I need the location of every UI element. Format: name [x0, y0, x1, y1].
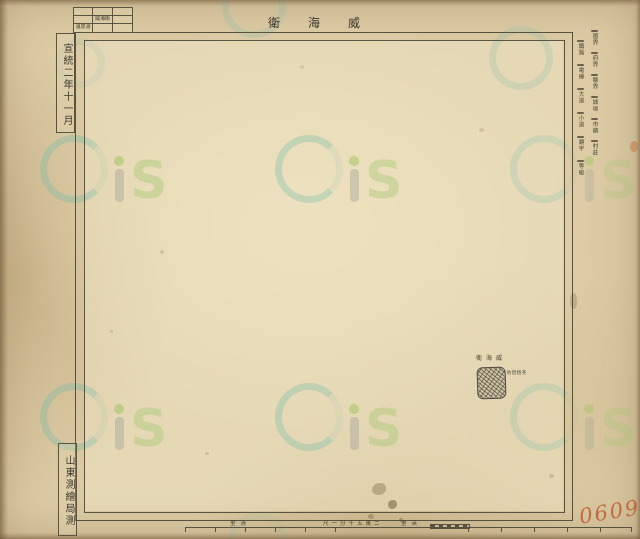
scale-tick [275, 528, 276, 532]
legend-item: 市鎮 [591, 118, 598, 134]
scale-tick [468, 528, 469, 532]
legend-symbol-icon [591, 96, 598, 98]
sheet-title: 衛海威 [268, 14, 388, 31]
legend-item: 縣界 [591, 74, 598, 90]
index-cell [93, 8, 112, 16]
watermark-i-icon [584, 404, 594, 451]
legend-label: 電線 [578, 67, 584, 80]
scale-tick [215, 528, 216, 532]
legend-label: 村莊 [592, 143, 598, 156]
watermark-s-letter: S [600, 407, 637, 451]
legend-label: 市鎮 [592, 121, 598, 134]
legend-label: 鐵路 [578, 43, 584, 56]
legend-item: 小道 [577, 112, 584, 128]
paper-edge-shadow [636, 0, 640, 539]
legend-inner-column: 鐵路 電線 大道 小道 廟宇 等級 [577, 40, 584, 176]
legend-item: 廟宇 [577, 136, 584, 152]
watermark-s-letter: S [600, 159, 637, 203]
legend-symbol-icon [591, 30, 598, 32]
scale-subdivision-comb [430, 524, 470, 529]
scale-tick [600, 528, 601, 532]
index-cell [113, 16, 132, 24]
scale-tick [335, 528, 336, 532]
scale-left-unit-label: 里清 [230, 519, 251, 527]
map-frame-inner [84, 40, 565, 513]
legend-symbol-icon [577, 160, 584, 162]
scale-bar: 里清 尺一分千五萬二 里英 [185, 518, 633, 534]
paper-edge-shadow [0, 0, 640, 6]
scanned-map-sheet: S S S S S S [0, 0, 640, 539]
legend-symbol-icon [577, 88, 584, 90]
legend-item: 等級 [577, 160, 584, 176]
legend-label: 小道 [578, 115, 584, 128]
legend-label: 等級 [578, 163, 584, 176]
legend-symbol-icon [591, 140, 598, 142]
legend-symbol-icon [591, 52, 598, 54]
legend-label: 大道 [578, 91, 584, 104]
legend-label: 國界 [592, 33, 598, 46]
index-cell-adjacent-sheet: 温泉湯 [74, 24, 93, 32]
adjoining-sheet-index-table: 威海衛 温泉湯 [73, 7, 133, 33]
legend-item: 大道 [577, 88, 584, 104]
scale-bar-line [185, 527, 632, 528]
legend-label: 府界 [592, 55, 598, 68]
scale-ratio-label: 尺一分千五萬二 [323, 519, 383, 527]
legend-symbol-icon [591, 74, 598, 76]
legend-item: 電線 [577, 64, 584, 80]
legend-outer-column: 國界 府界 縣界 城垣 市鎮 村莊 [591, 30, 598, 156]
scale-tick [534, 528, 535, 532]
legend-item: 村莊 [591, 140, 598, 156]
index-cell [74, 16, 93, 24]
index-cell [113, 8, 132, 16]
legend-item: 國界 [591, 30, 598, 46]
index-cell [113, 24, 132, 32]
watermark-i-icon [584, 156, 594, 203]
scale-tick [245, 528, 246, 532]
scale-tick [631, 528, 632, 532]
index-cell [93, 24, 112, 32]
legend-symbol-icon [577, 64, 584, 66]
survey-agency-box: 山東測繪局測 [58, 443, 77, 536]
town-seal-stamp [476, 367, 506, 400]
scale-tick [185, 528, 186, 532]
index-cell [74, 8, 93, 16]
index-cell-current-sheet: 威海衛 [93, 16, 112, 24]
legend-symbol-icon [577, 40, 584, 42]
legend-label: 城垣 [592, 99, 598, 112]
legend-label: 縣界 [592, 77, 598, 90]
scale-tick [567, 528, 568, 532]
scale-tick [305, 528, 306, 532]
scale-tick [501, 528, 502, 532]
legend-item: 府界 [591, 52, 598, 68]
legend-label: 廟宇 [578, 139, 584, 152]
survey-date-box: 宣統二年十一月 [56, 33, 75, 133]
legend-item: 城垣 [591, 96, 598, 112]
paper-edge-shadow [0, 0, 8, 539]
legend-symbol-icon [577, 112, 584, 114]
stain [630, 141, 638, 152]
town-name-label: 衛海威 [476, 353, 506, 362]
legend-symbol-icon [591, 118, 598, 120]
legend-symbol-icon [577, 136, 584, 138]
legend-item: 鐵路 [577, 40, 584, 56]
leased-territory-note: 英租借地 [507, 370, 527, 376]
scale-right-unit-label: 里英 [401, 519, 422, 527]
